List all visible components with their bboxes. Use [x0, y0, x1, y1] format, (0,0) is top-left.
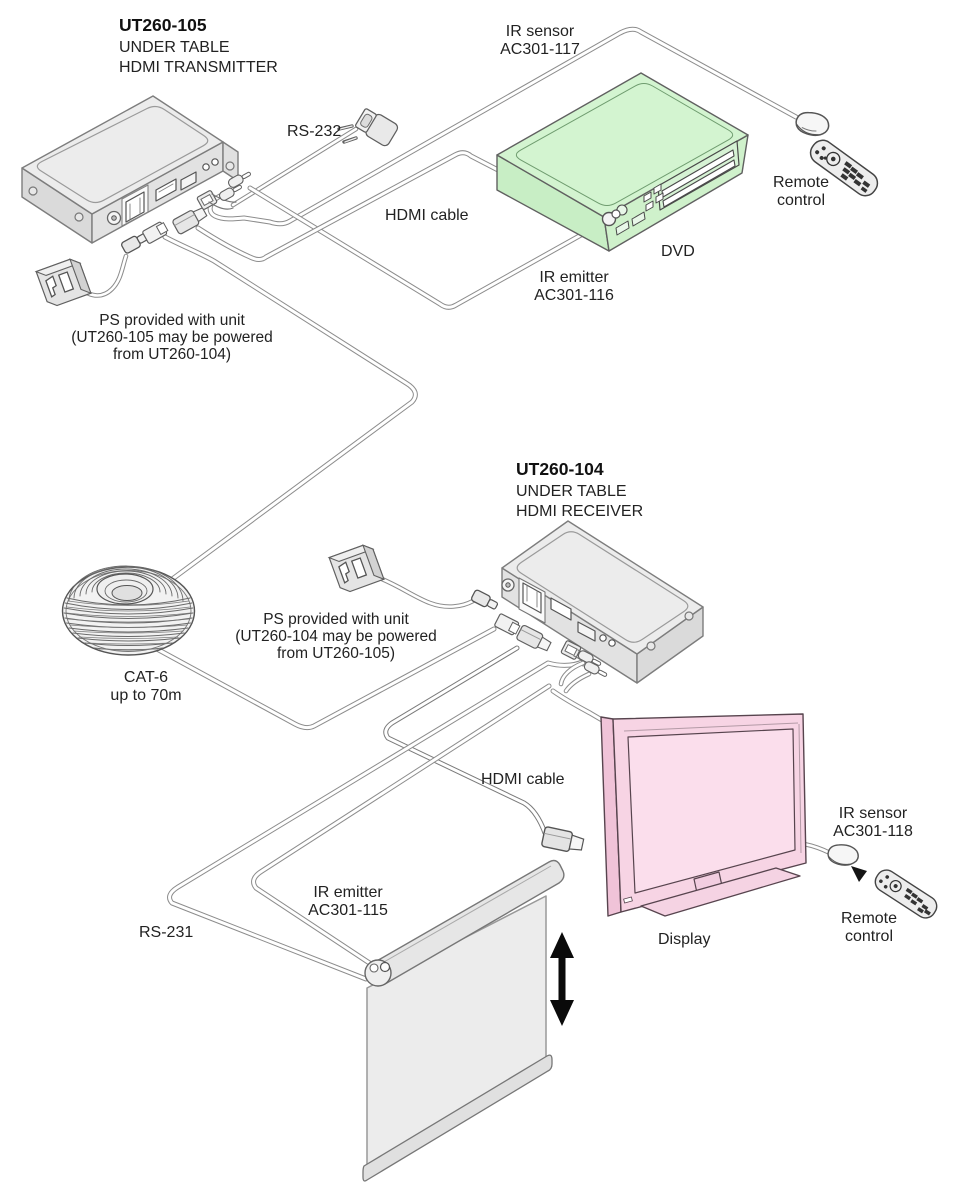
svg-text:Display: Display: [658, 931, 710, 948]
svg-text:AC301-115: AC301-115: [308, 902, 388, 919]
svg-text:DVD: DVD: [661, 243, 695, 260]
svg-text:RS-232: RS-232: [287, 123, 341, 140]
svg-text:IR sensor: IR sensor: [506, 23, 575, 40]
svg-text:IR emitter: IR emitter: [313, 884, 383, 901]
svg-text:RS-231: RS-231: [139, 924, 193, 941]
svg-text:IR sensor: IR sensor: [839, 805, 908, 822]
svg-text:HDMI RECEIVER: HDMI RECEIVER: [516, 503, 643, 520]
svg-text:PS provided with unit: PS provided with unit: [263, 611, 409, 628]
svg-text:Remote: Remote: [841, 910, 897, 927]
svg-text:UNDER TABLE: UNDER TABLE: [119, 39, 230, 56]
svg-text:control: control: [845, 928, 893, 945]
svg-text:HDMI cable: HDMI cable: [385, 207, 469, 224]
svg-text:UNDER TABLE: UNDER TABLE: [516, 483, 627, 500]
svg-text:HDMI cable: HDMI cable: [481, 771, 565, 788]
svg-text:Remote: Remote: [773, 174, 829, 191]
svg-text:UT260-105: UT260-105: [119, 15, 207, 35]
svg-text:from UT260-105): from UT260-105): [277, 645, 395, 662]
svg-text:from UT260-104): from UT260-104): [113, 346, 231, 363]
svg-text:UT260-104: UT260-104: [516, 459, 604, 479]
svg-text:PS provided with unit: PS provided with unit: [99, 312, 245, 329]
svg-text:up to 70m: up to 70m: [110, 687, 181, 704]
svg-text:AC301-118: AC301-118: [833, 823, 913, 840]
svg-text:(UT260-105 may be powered: (UT260-105 may be powered: [71, 329, 273, 346]
svg-text:HDMI TRANSMITTER: HDMI TRANSMITTER: [119, 59, 278, 76]
svg-text:AC301-117: AC301-117: [500, 41, 580, 58]
svg-text:(UT260-104 may be powered: (UT260-104 may be powered: [235, 628, 437, 645]
svg-text:control: control: [777, 192, 825, 209]
svg-text:CAT-6: CAT-6: [124, 669, 168, 686]
svg-text:AC301-116: AC301-116: [534, 287, 614, 304]
svg-text:IR emitter: IR emitter: [539, 269, 609, 286]
